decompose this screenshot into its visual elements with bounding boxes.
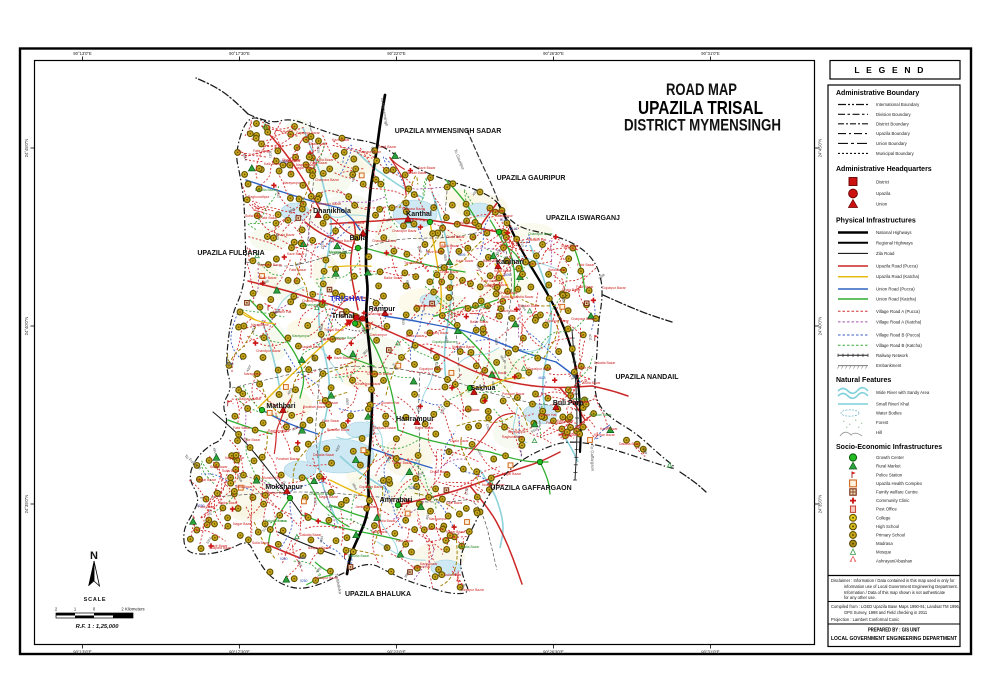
- svg-text:To Gaffargaon: To Gaffargaon: [590, 445, 596, 472]
- svg-text:Upazila: Upazila: [876, 191, 891, 196]
- svg-text:Fakir Bazar: Fakir Bazar: [289, 268, 307, 272]
- svg-text:UPAZILA FULBARIA: UPAZILA FULBARIA: [197, 250, 264, 257]
- svg-text:5280: 5280: [298, 556, 306, 560]
- svg-text:Village Road A (Pucca): Village Road A (Pucca): [876, 309, 920, 314]
- svg-text:5280: 5280: [197, 504, 205, 508]
- svg-text:Upazila Health Complex: Upazila Health Complex: [876, 481, 923, 486]
- svg-text:Gopalpur Bazar: Gopalpur Bazar: [419, 367, 444, 371]
- svg-text:Amirabari: Amirabari: [380, 497, 413, 504]
- svg-text:Porabari Bazar: Porabari Bazar: [276, 457, 299, 461]
- svg-text:Fakir Bazar: Fakir Bazar: [577, 263, 595, 267]
- svg-text:Administrative Headquarters: Administrative Headquarters: [836, 166, 932, 173]
- svg-text:UPAZILA GAFFARGAON: UPAZILA GAFFARGAON: [490, 485, 571, 492]
- svg-text:UPAZILA NANDAIL: UPAZILA NANDAIL: [616, 374, 680, 381]
- svg-text:for any other use.: for any other use.: [844, 595, 876, 600]
- svg-text:Sutia Bazar: Sutia Bazar: [222, 469, 240, 473]
- svg-text:Fakir Bazar: Fakir Bazar: [322, 419, 340, 423]
- svg-text:Buli Para: Buli Para: [553, 400, 583, 407]
- svg-text:Kanhar Bazar: Kanhar Bazar: [487, 283, 509, 287]
- svg-text:5113: 5113: [384, 544, 389, 551]
- svg-text:Nagar Bazar: Nagar Bazar: [233, 522, 253, 526]
- svg-text:Kalir Bazar: Kalir Bazar: [264, 162, 281, 166]
- svg-text:GPS Survey, 1998 and Field che: GPS Survey, 1998 and Field checking in 2…: [844, 610, 928, 615]
- svg-text:Bailor Bazar: Bailor Bazar: [393, 461, 412, 465]
- svg-text:24°45'0"N: 24°45'0"N: [24, 139, 29, 158]
- svg-text:Wide River with Sandy Area: Wide River with Sandy Area: [876, 390, 930, 395]
- svg-text:Noapara Bazar: Noapara Bazar: [209, 546, 233, 550]
- svg-text:90°22'0"E: 90°22'0"E: [387, 51, 406, 56]
- svg-text:Municipal Boundary: Municipal Boundary: [876, 151, 915, 156]
- svg-text:Gopalpur Bazar: Gopalpur Bazar: [296, 131, 321, 135]
- svg-text:Disclaimer : Information / Da: Disclaimer : Information / Data containe…: [831, 578, 955, 583]
- svg-text:Raghunathpur: Raghunathpur: [415, 304, 437, 308]
- svg-text:Kanihari: Kanihari: [496, 259, 524, 266]
- svg-text:Bailor Bazar: Bailor Bazar: [470, 320, 489, 324]
- svg-text:5280: 5280: [226, 362, 234, 366]
- svg-text:District: District: [876, 180, 890, 185]
- svg-text:Union: Union: [876, 202, 888, 207]
- svg-text:Kazir Bazar: Kazir Bazar: [456, 259, 474, 263]
- svg-text:Village Road B (Katcha): Village Road B (Katcha): [876, 343, 922, 348]
- svg-text:Porabari Bazar: Porabari Bazar: [327, 428, 350, 432]
- svg-text:UPAZILA GAURIPUR: UPAZILA GAURIPUR: [497, 175, 566, 182]
- svg-text:Sutia Bazar: Sutia Bazar: [444, 573, 462, 577]
- svg-text:Rural Market: Rural Market: [876, 464, 901, 469]
- svg-text:5280: 5280: [280, 557, 288, 561]
- svg-text:3608: 3608: [561, 296, 566, 304]
- svg-text:Fakir Bazar: Fakir Bazar: [233, 426, 251, 430]
- svg-text:Bailor Bazar: Bailor Bazar: [384, 276, 403, 280]
- svg-text:Kazir Bazar: Kazir Bazar: [426, 250, 444, 254]
- svg-text:Raghunathpur: Raghunathpur: [268, 429, 290, 433]
- svg-text:Projection : Lambert C: Projection : Lambert Conformal Conic: [831, 617, 899, 622]
- svg-text:Bailor Bazar: Bailor Bazar: [406, 334, 425, 338]
- svg-text:Fakir Bazar: Fakir Bazar: [243, 438, 261, 442]
- svg-text:Kashiganj Bazar: Kashiganj Bazar: [424, 331, 450, 335]
- svg-text:Nagar Bazar: Nagar Bazar: [319, 401, 339, 405]
- svg-text:4509: 4509: [275, 233, 280, 241]
- svg-text:Union Road (Pucca): Union Road (Pucca): [876, 287, 915, 292]
- svg-text:Village Road A (Katcha): Village Road A (Katcha): [876, 319, 922, 324]
- svg-text:Kalir Bazar: Kalir Bazar: [260, 276, 277, 280]
- svg-text:Baila: Baila: [350, 235, 367, 242]
- svg-text:Narayanpur: Narayanpur: [508, 430, 527, 434]
- svg-text:Narayanpur: Narayanpur: [429, 517, 448, 521]
- svg-text:Union Road (Katcha): Union Road (Katcha): [876, 297, 917, 302]
- svg-text:90°13'0"E: 90°13'0"E: [73, 51, 92, 56]
- svg-text:Porabari Bazar: Porabari Bazar: [303, 405, 326, 409]
- svg-text:Upazila Road (Pucca): Upazila Road (Pucca): [876, 264, 918, 269]
- svg-text:Porabari Bazar: Porabari Bazar: [589, 413, 612, 417]
- svg-text:Madrasa: Madrasa: [876, 541, 893, 546]
- svg-text:Embankment: Embankment: [876, 363, 902, 368]
- svg-text:Raghunathpur: Raghunathpur: [502, 435, 524, 439]
- svg-text:Dhala Bazar: Dhala Bazar: [562, 288, 582, 292]
- svg-text:24°40'0"N: 24°40'0"N: [24, 317, 29, 336]
- svg-text:Balipara Bazar: Balipara Bazar: [308, 546, 331, 550]
- svg-text:5312: 5312: [313, 498, 318, 506]
- svg-text:4509: 4509: [443, 254, 448, 262]
- svg-text:Water Bodies: Water Bodies: [876, 411, 902, 416]
- svg-text:Kazir Bazar: Kazir Bazar: [501, 309, 519, 313]
- svg-text:L E G E N D: L E G E N D: [854, 65, 925, 75]
- svg-text:District Boundary: District Boundary: [876, 121, 910, 126]
- svg-text:Compiled from : LGED Upazila B: Compiled from : LGED Upazila Base Maps 1…: [831, 604, 960, 609]
- svg-text:24°35'0"N: 24°35'0"N: [24, 495, 29, 514]
- svg-text:Upazila Road (Katcha): Upazila Road (Katcha): [876, 274, 920, 279]
- svg-text:3815: 3815: [401, 318, 406, 326]
- svg-text:Kalir Bazar: Kalir Bazar: [446, 501, 463, 505]
- svg-text:Sutia Bazar: Sutia Bazar: [378, 519, 396, 523]
- svg-text:Nagar Bazar: Nagar Bazar: [502, 472, 522, 476]
- svg-text:Chandpur Bazar: Chandpur Bazar: [256, 349, 282, 353]
- svg-text:Gopalpur Bazar: Gopalpur Bazar: [258, 263, 283, 267]
- svg-text:Narayanpur: Narayanpur: [244, 372, 263, 376]
- svg-text:Harirampur: Harirampur: [396, 416, 434, 423]
- svg-text:Bailor Bazar: Bailor Bazar: [219, 501, 238, 505]
- svg-text:Dakatia Bazar: Dakatia Bazar: [313, 453, 335, 457]
- svg-text:90°31'0"E: 90°31'0"E: [701, 650, 720, 655]
- svg-text:Gopalpur Bazar: Gopalpur Bazar: [545, 319, 570, 323]
- svg-text:Munshir Hat: Munshir Hat: [412, 565, 430, 569]
- svg-text:5280: 5280: [409, 486, 417, 490]
- svg-text:Gopalpur Bazar: Gopalpur Bazar: [528, 367, 553, 371]
- svg-text:Porabari Bazar: Porabari Bazar: [265, 491, 288, 495]
- svg-text:Dakatia Bazar: Dakatia Bazar: [265, 519, 287, 523]
- svg-text:UPAZILA BHALUKA: UPAZILA BHALUKA: [345, 591, 411, 598]
- svg-text:5312: 5312: [276, 191, 281, 199]
- svg-text:Kanhar Bazar: Kanhar Bazar: [594, 433, 616, 437]
- svg-text:Union Boundary: Union Boundary: [876, 141, 908, 146]
- svg-text:Balipara Bazar: Balipara Bazar: [239, 397, 262, 401]
- svg-text:Porabari Bazar: Porabari Bazar: [502, 392, 525, 396]
- svg-text:Physical Infrastructures: Physical Infrastructures: [836, 218, 916, 225]
- svg-text:Village Road B (Pucca): Village Road B (Pucca): [876, 333, 921, 338]
- svg-text:Kalir Bazar: Kalir Bazar: [348, 221, 365, 225]
- svg-text:90°22'0"E: 90°22'0"E: [387, 650, 406, 655]
- svg-text:Primary School: Primary School: [876, 533, 905, 538]
- svg-text:5113: 5113: [434, 362, 439, 369]
- svg-text:24°45'0"N: 24°45'0"N: [818, 139, 823, 158]
- svg-text:4814: 4814: [444, 336, 449, 344]
- svg-text:Administrative Boundary: Administrative Boundary: [836, 90, 919, 97]
- svg-text:Fakir Bazar: Fakir Bazar: [487, 209, 505, 213]
- svg-text:24°40'0"N: 24°40'0"N: [818, 317, 823, 336]
- svg-text:Bailor Bazar: Bailor Bazar: [415, 426, 434, 430]
- svg-text:90°26'30"E: 90°26'30"E: [543, 650, 564, 655]
- svg-text:6146: 6146: [500, 218, 508, 222]
- svg-text:3806: 3806: [503, 273, 511, 277]
- svg-text:Growth Center: Growth Center: [876, 455, 905, 460]
- svg-text:4011: 4011: [588, 334, 593, 341]
- svg-text:Kazir Bazar: Kazir Bazar: [332, 138, 350, 142]
- svg-text:Chandpur Bazar: Chandpur Bazar: [392, 229, 418, 233]
- svg-text:Sutia Bazar: Sutia Bazar: [516, 295, 534, 299]
- svg-text:Ashrayan/Abashan: Ashrayan/Abashan: [876, 558, 913, 563]
- svg-text:Tarati Bazar: Tarati Bazar: [404, 261, 423, 265]
- svg-text:DISTRICT MYMENSINGH: DISTRICT MYMENSINGH: [624, 117, 781, 135]
- svg-text:LOCAL GOVERNMENT ENGINEERING D: LOCAL GOVERNMENT ENGINEERING DEPARTMENT: [831, 636, 958, 642]
- svg-text:Nagar Bazar: Nagar Bazar: [197, 478, 217, 482]
- svg-text:Small River/ Khal: Small River/ Khal: [876, 402, 909, 407]
- svg-text:90°26'30"E: 90°26'30"E: [543, 51, 564, 56]
- svg-text:Jamtali Bazar: Jamtali Bazar: [406, 171, 427, 175]
- svg-text:Nagar Bazar: Nagar Bazar: [446, 530, 466, 534]
- svg-text:Sutia Bazar: Sutia Bazar: [561, 244, 579, 248]
- svg-text:4011: 4011: [208, 509, 213, 516]
- svg-text:Kazir Bazar: Kazir Bazar: [462, 408, 480, 412]
- svg-text:Mirzapur Bazar: Mirzapur Bazar: [461, 588, 485, 592]
- svg-text:Dhala Bazar: Dhala Bazar: [440, 270, 460, 274]
- svg-text:Fakir Bazar: Fakir Bazar: [426, 527, 444, 531]
- svg-text:Sutia Bazar: Sutia Bazar: [548, 268, 566, 272]
- svg-text:Chandpur Bazar: Chandpur Bazar: [309, 492, 335, 496]
- svg-text:Kazir Bazar: Kazir Bazar: [287, 252, 305, 256]
- svg-text:Fakir Bazar: Fakir Bazar: [396, 539, 414, 543]
- svg-text:Kazir Bazar: Kazir Bazar: [418, 166, 436, 170]
- svg-text:Mathbari: Mathbari: [266, 403, 295, 410]
- svg-text:Munshir Hat: Munshir Hat: [574, 366, 592, 370]
- svg-text:Dakatia Bazar: Dakatia Bazar: [458, 545, 480, 549]
- svg-text:5113: 5113: [464, 488, 469, 495]
- svg-text:Balipara Bazar: Balipara Bazar: [374, 426, 397, 430]
- svg-text:Charpara Bazar: Charpara Bazar: [357, 150, 382, 154]
- svg-text:90°17'30"E: 90°17'30"E: [229, 51, 250, 56]
- svg-text:information use of Local Gover: information use of Local Government Engi…: [844, 584, 958, 589]
- svg-text:4509: 4509: [345, 398, 350, 406]
- svg-text:Charpara Bazar: Charpara Bazar: [304, 303, 329, 307]
- svg-text:Narayanpur: Narayanpur: [292, 334, 311, 338]
- svg-text:SCALE: SCALE: [84, 597, 107, 603]
- svg-text:90°13'0"E: 90°13'0"E: [73, 650, 92, 655]
- svg-text:Munshir Hat: Munshir Hat: [262, 476, 280, 480]
- svg-text:Dakatia Bazar: Dakatia Bazar: [619, 442, 641, 446]
- svg-text:High School: High School: [876, 524, 899, 529]
- svg-text:Dakatia Bazar: Dakatia Bazar: [255, 188, 277, 192]
- svg-text:6146: 6146: [510, 227, 518, 231]
- svg-text:Dhala Bazar: Dhala Bazar: [446, 235, 466, 239]
- svg-text:Dhanikhola: Dhanikhola: [313, 208, 351, 215]
- svg-text:Nagar Bazar: Nagar Bazar: [296, 163, 316, 167]
- svg-text:Jamtali Bazar: Jamtali Bazar: [469, 305, 490, 309]
- svg-text:Mirzapur Bazar: Mirzapur Bazar: [318, 202, 342, 206]
- svg-text:5113: 5113: [520, 240, 525, 247]
- svg-text:Munshir Hat: Munshir Hat: [528, 238, 546, 242]
- svg-text:UPAZILA ISWARGANJ: UPAZILA ISWARGANJ: [546, 215, 620, 222]
- svg-text:Sakhua: Sakhua: [471, 385, 496, 392]
- svg-text:Sutia Bazar: Sutia Bazar: [583, 381, 601, 385]
- svg-text:Community Clinic: Community Clinic: [876, 498, 910, 503]
- svg-text:Chandpur Bazar: Chandpur Bazar: [367, 372, 393, 376]
- svg-text:5312: 5312: [320, 242, 325, 250]
- svg-text:Sutia Bazar: Sutia Bazar: [441, 244, 459, 248]
- svg-text:Darirampur: Darirampur: [370, 333, 388, 337]
- svg-text:Forest: Forest: [876, 420, 889, 425]
- svg-text:UPAZILA TRISAL: UPAZILA TRISAL: [638, 97, 763, 118]
- svg-text:Dhala Bazar: Dhala Bazar: [450, 439, 470, 443]
- svg-text:2 Kilometers: 2 Kilometers: [121, 607, 144, 612]
- svg-text:Trishal Bazar: Trishal Bazar: [324, 328, 345, 332]
- svg-text:4509: 4509: [494, 338, 499, 346]
- svg-text:4628: 4628: [538, 376, 546, 380]
- svg-text:Rampur: Rampur: [369, 306, 396, 313]
- svg-text:Police Station: Police Station: [876, 472, 903, 477]
- svg-text:Post Office: Post Office: [876, 507, 898, 512]
- svg-text:Fakir Bazar: Fakir Bazar: [260, 216, 278, 220]
- svg-text:5280: 5280: [280, 160, 288, 164]
- svg-text:5021: 5021: [268, 151, 273, 159]
- svg-text:Narayanpur: Narayanpur: [283, 181, 302, 185]
- svg-text:R.F. 1 : 1,25,000: R.F. 1 : 1,25,000: [76, 624, 120, 630]
- svg-text:Kazir Bazar: Kazir Bazar: [600, 427, 618, 431]
- svg-text:Dhala Bazar: Dhala Bazar: [455, 221, 475, 225]
- svg-text:Kalir Bazar: Kalir Bazar: [371, 530, 388, 534]
- svg-text:Regional Highways: Regional Highways: [876, 240, 913, 245]
- svg-text:Natural Features: Natural Features: [836, 377, 891, 384]
- svg-text:Tarati Bazar: Tarati Bazar: [378, 145, 397, 149]
- svg-text:Gopalpur Bazar: Gopalpur Bazar: [432, 340, 457, 344]
- svg-text:Munshir Hat: Munshir Hat: [329, 250, 347, 254]
- svg-text:5021: 5021: [433, 201, 438, 209]
- svg-text:Noapara Bazar: Noapara Bazar: [333, 336, 357, 340]
- svg-text:Dhala Bazar: Dhala Bazar: [430, 470, 450, 474]
- svg-text:Dakatia Bazar: Dakatia Bazar: [594, 361, 616, 365]
- svg-text:3806: 3806: [458, 253, 466, 257]
- svg-text:90°17'30"E: 90°17'30"E: [229, 650, 250, 655]
- svg-text:International Boundary: International Boundary: [876, 102, 920, 107]
- svg-text:Chandpur Bazar: Chandpur Bazar: [528, 232, 554, 236]
- svg-text:Kanthal: Kanthal: [406, 211, 432, 218]
- svg-text:Chandpur Bazar: Chandpur Bazar: [372, 239, 398, 243]
- svg-text:Gopalpur Bazar: Gopalpur Bazar: [602, 286, 627, 290]
- svg-text:Railway Network: Railway Network: [876, 353, 909, 358]
- svg-text:Division Boundary: Division Boundary: [876, 112, 911, 117]
- svg-text:24°35'0"N: 24°35'0"N: [818, 495, 823, 514]
- svg-text:Kalir Bazar: Kalir Bazar: [326, 505, 343, 509]
- svg-text:Raghunathpur: Raghunathpur: [248, 195, 270, 199]
- svg-text:Charpara Bazar: Charpara Bazar: [315, 178, 340, 182]
- svg-text:3815: 3815: [316, 146, 321, 154]
- svg-text:PREPARED BY : GIS UNIT: PREPARED BY : GIS UNIT: [868, 628, 920, 634]
- svg-text:Noapara Bazar: Noapara Bazar: [452, 345, 476, 349]
- svg-text:Chandpur Bazar: Chandpur Bazar: [356, 382, 382, 386]
- svg-text:Kalir Bazar: Kalir Bazar: [490, 371, 507, 375]
- svg-text:National Highways: National Highways: [876, 230, 912, 235]
- svg-text:Charpara Bazar: Charpara Bazar: [571, 317, 596, 321]
- svg-text:Dakatia Bazar: Dakatia Bazar: [558, 433, 580, 437]
- svg-text:Dakatia Bazar: Dakatia Bazar: [300, 533, 322, 537]
- svg-text:Munshir Hat: Munshir Hat: [538, 413, 556, 417]
- svg-text:Socio-Economic Infrastructures: Socio-Economic Infrastructures: [836, 444, 942, 451]
- svg-text:Family welfare Centre: Family welfare Centre: [876, 490, 918, 495]
- svg-text:Kazir Bazar: Kazir Bazar: [334, 356, 352, 360]
- svg-text:Upazila Boundary: Upazila Boundary: [876, 131, 911, 136]
- svg-text:90°31'0"E: 90°31'0"E: [701, 51, 720, 56]
- svg-text:Sutia Bazar: Sutia Bazar: [252, 541, 270, 545]
- svg-text:Sutia Bazar: Sutia Bazar: [235, 485, 253, 489]
- svg-text:Kanhar Bazar: Kanhar Bazar: [301, 345, 323, 349]
- svg-text:Zila Road: Zila Road: [876, 251, 895, 256]
- svg-text:UPAZILA MYMENSINGH SADAR: UPAZILA MYMENSINGH SADAR: [395, 128, 502, 135]
- svg-text:Dakatia Bazar: Dakatia Bazar: [348, 554, 370, 558]
- svg-text:Mokshapur: Mokshapur: [265, 484, 303, 491]
- svg-text:Gopalpur Bazar: Gopalpur Bazar: [359, 485, 384, 489]
- svg-text:Hill: Hill: [876, 430, 882, 435]
- svg-text:Mosque: Mosque: [876, 550, 892, 555]
- svg-text:TRISHAL: TRISHAL: [330, 294, 366, 303]
- svg-text:Dhala Bazar: Dhala Bazar: [499, 291, 519, 295]
- svg-text:Trishal: Trishal: [332, 313, 355, 320]
- svg-text:College: College: [876, 515, 891, 520]
- svg-text:Jamtali Bazar: Jamtali Bazar: [355, 505, 376, 509]
- svg-text:Munshir Hat: Munshir Hat: [381, 401, 399, 405]
- svg-text:5280: 5280: [300, 579, 308, 583]
- svg-text:Fakir Bazar: Fakir Bazar: [546, 421, 564, 425]
- svg-text:N: N: [90, 550, 98, 562]
